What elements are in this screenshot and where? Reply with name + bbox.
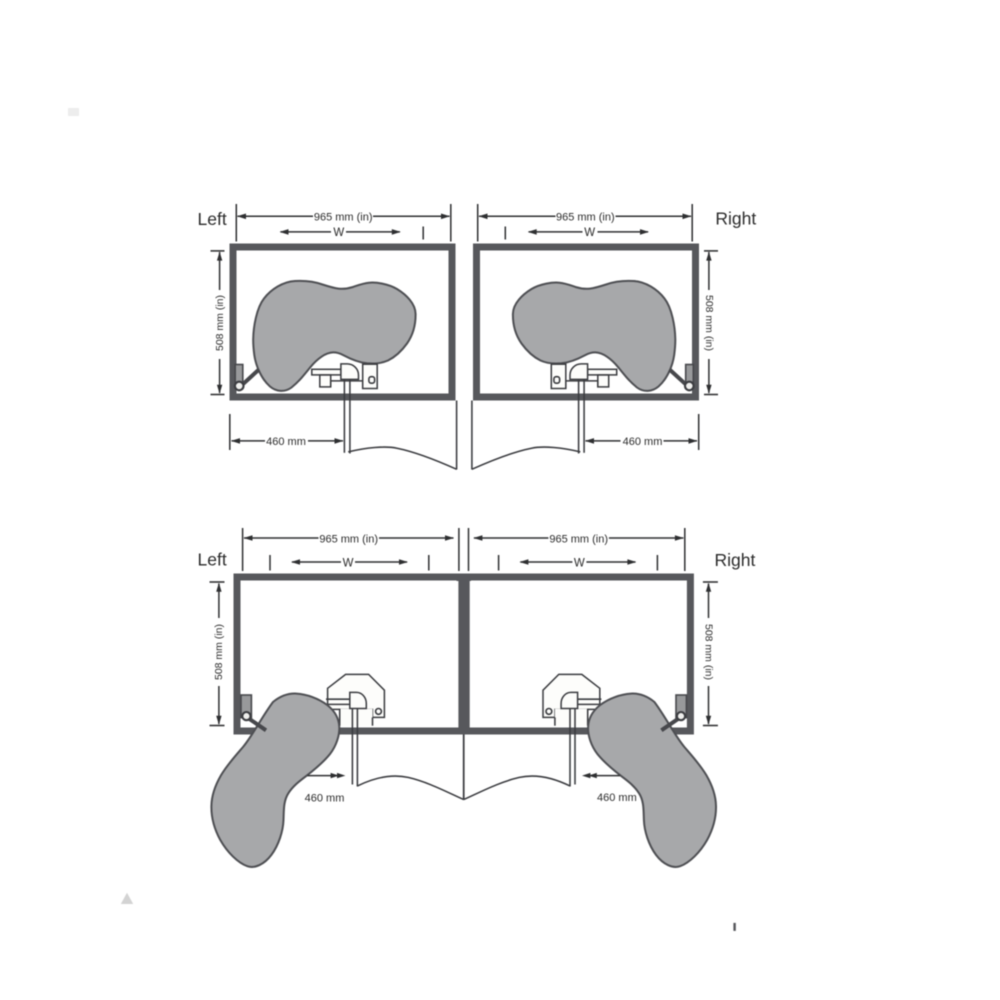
- svg-text:W: W: [333, 227, 344, 239]
- svg-text:Right: Right: [715, 208, 756, 228]
- svg-text:460 mm: 460 mm: [597, 792, 637, 804]
- svg-text:508 mm (in): 508 mm (in): [214, 295, 226, 351]
- svg-text:Left: Left: [198, 549, 227, 569]
- svg-text:W: W: [343, 558, 354, 570]
- svg-text:W: W: [584, 227, 595, 239]
- svg-text:Right: Right: [715, 550, 756, 570]
- svg-text:460 mm: 460 mm: [623, 436, 663, 448]
- svg-text:Left: Left: [198, 209, 227, 229]
- svg-text:460 mm: 460 mm: [305, 792, 345, 804]
- svg-text:965 mm (in): 965 mm (in): [549, 533, 608, 545]
- svg-text:508 mm (in): 508 mm (in): [702, 624, 714, 680]
- svg-text:460 mm: 460 mm: [266, 436, 306, 448]
- svg-text:W: W: [574, 558, 585, 570]
- svg-text:965 mm (in): 965 mm (in): [314, 212, 373, 224]
- svg-text:965 mm (in): 965 mm (in): [319, 533, 378, 545]
- svg-text:965 mm (in): 965 mm (in): [556, 212, 615, 224]
- svg-text:508 mm (in): 508 mm (in): [213, 624, 225, 680]
- svg-text:508 mm (in): 508 mm (in): [703, 295, 715, 351]
